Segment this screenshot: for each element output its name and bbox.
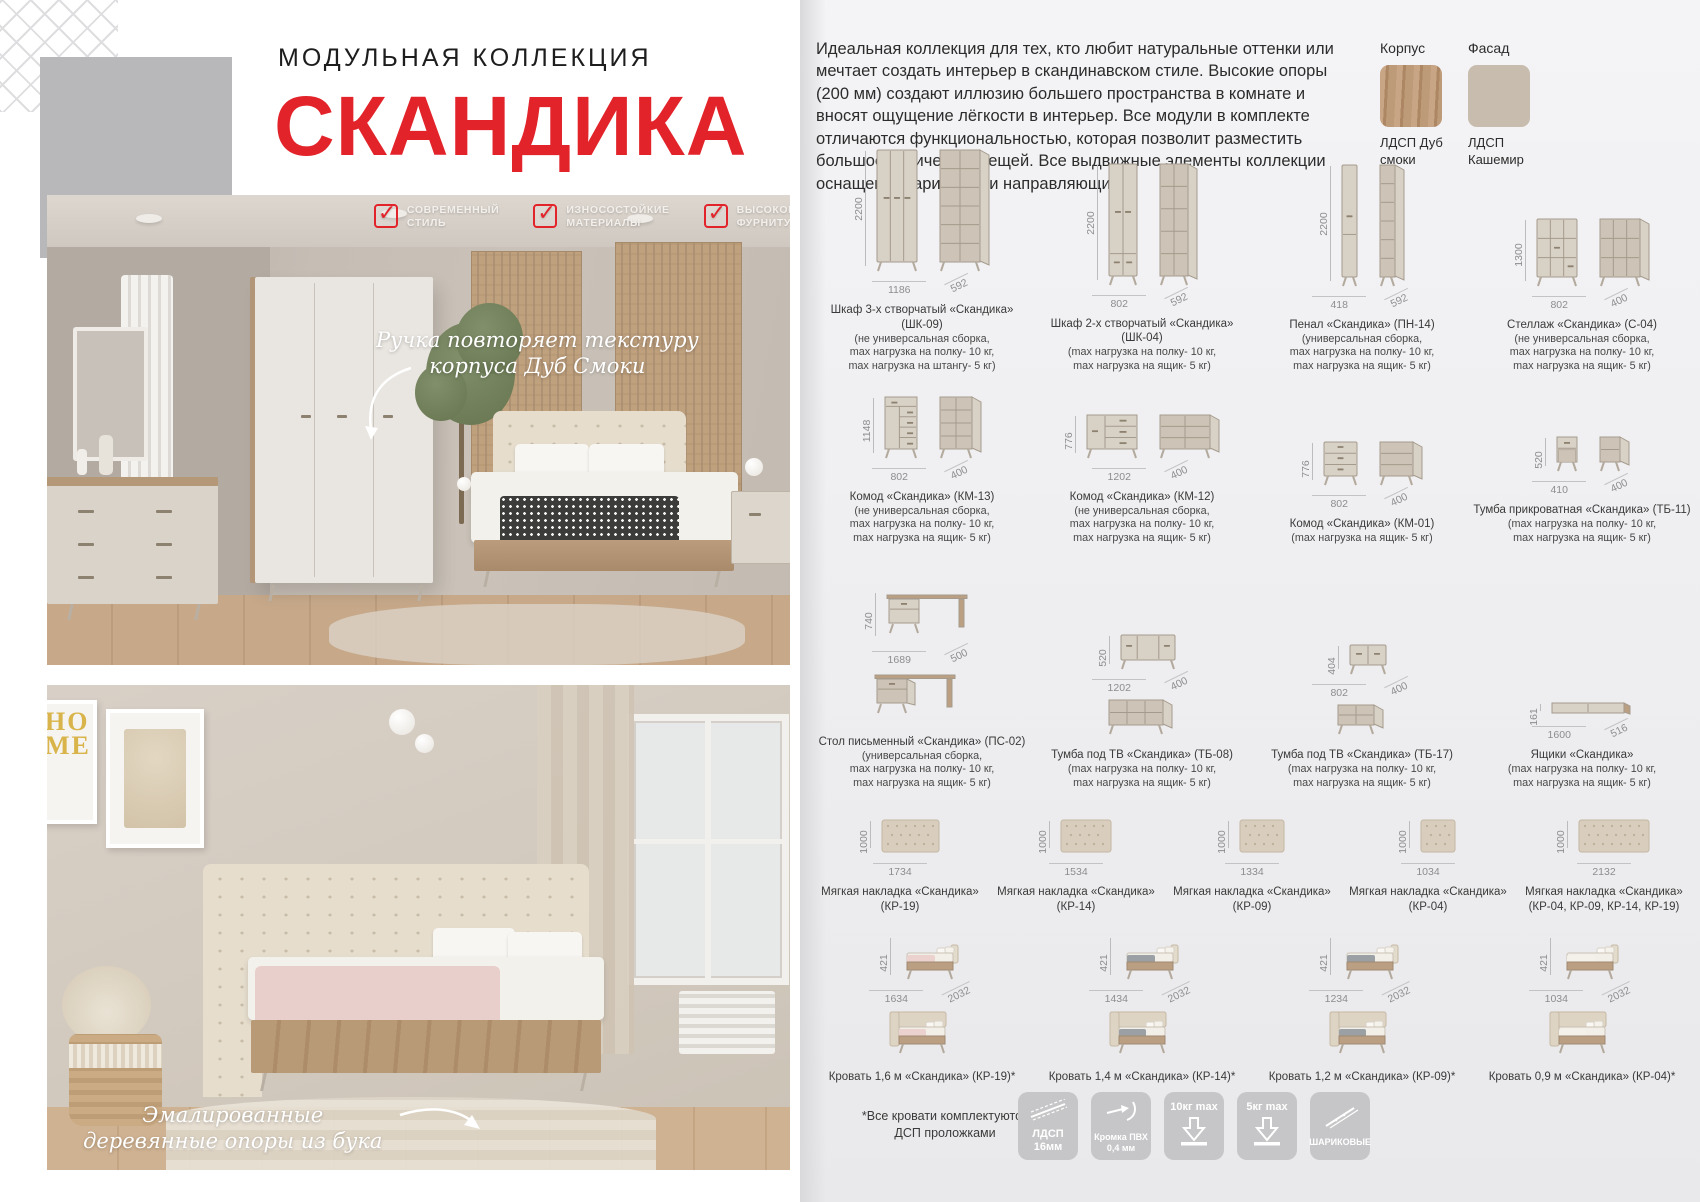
furniture-drawing-open bbox=[1379, 164, 1408, 293]
product-card: 5201202400Тумба под ТВ «Скандика» (ТБ-08… bbox=[1032, 549, 1252, 791]
poster-frame bbox=[106, 709, 203, 848]
height-dimension: 776 bbox=[1299, 441, 1314, 492]
product-row: 22001186592Шкаф 3-х створчатый «Скандика… bbox=[812, 194, 1692, 374]
furniture-drawing-open bbox=[1599, 218, 1653, 293]
furniture-drawing-open bbox=[1379, 441, 1426, 492]
product-row: 421 16342032 Кровать 1,6 м «Скандика» (К… bbox=[812, 917, 1692, 1085]
product-card: 1611600516Ящики «Скандика»(max нагрузка … bbox=[1472, 549, 1692, 791]
slides-tile: ШАРИКОВЫЕ bbox=[1310, 1092, 1370, 1160]
poster-text: HO ME bbox=[47, 704, 93, 765]
furniture-drawing bbox=[1086, 414, 1150, 465]
furniture-drawing bbox=[1239, 819, 1289, 860]
bed-base bbox=[474, 540, 734, 571]
height-dimension: 1000 bbox=[1554, 819, 1569, 860]
product-name: Кровать 0,9 м «Скандика» (КР-04)* bbox=[1489, 1070, 1676, 1085]
dresser bbox=[47, 477, 218, 604]
edge-tile: Кромка ПВХ 0,4 мм bbox=[1091, 1092, 1151, 1160]
furniture-drawing bbox=[1341, 936, 1407, 987]
pendant-lamp bbox=[415, 734, 434, 753]
furniture-drawing bbox=[884, 396, 930, 465]
base-dimensions: 802400 bbox=[1532, 296, 1632, 311]
material-korpus: Корпус ЛДСП Дуб смоки bbox=[1380, 40, 1446, 169]
product-card: 10002132Мягкая накладка «Скандика» (КР-0… bbox=[1516, 793, 1692, 915]
furniture-drawing-open bbox=[1599, 436, 1633, 478]
product-note: (не универсальная сборка,max нагрузка на… bbox=[848, 333, 995, 374]
poster-frame: HO ME bbox=[47, 700, 97, 824]
product-card: 10001534Мягкая накладка «Скандика» (КР-1… bbox=[988, 793, 1164, 915]
height-dimension: 520 bbox=[1532, 436, 1547, 478]
product-name: Пенал «Скандика» (ПН-14) bbox=[1289, 318, 1434, 333]
height-dimension: 1000 bbox=[1396, 819, 1411, 860]
curved-arrow-icon bbox=[396, 1105, 486, 1141]
edge-icon bbox=[1103, 1099, 1139, 1130]
height-dimension: 421 bbox=[1317, 936, 1332, 987]
product-card: 2200418592Пенал «Скандика» (ПН-14)(униве… bbox=[1252, 194, 1472, 374]
product-name: Кровать 1,2 м «Скандика» (КР-09)* bbox=[1269, 1070, 1456, 1085]
furniture-drawing bbox=[1578, 819, 1654, 860]
height-dimension: 1000 bbox=[1215, 819, 1230, 860]
vase bbox=[99, 435, 113, 475]
furniture-drawing-open bbox=[886, 1010, 958, 1063]
base-dimensions: 1534 bbox=[1049, 863, 1103, 878]
handle-annotation: Ручка повторяет текстуру корпуса Дуб Смо… bbox=[374, 327, 701, 380]
pendant-lamp bbox=[389, 709, 415, 735]
ldsp-tile: ЛДСП 16мм bbox=[1018, 1092, 1078, 1160]
product-card: 2200802592Шкаф 2-х створчатый «Скандика»… bbox=[1032, 194, 1252, 374]
lamp bbox=[745, 458, 763, 476]
badge-label: ВЫСОКОКАЧЕСТВЕ ФУРНИТУРА bbox=[737, 204, 790, 230]
base-dimensions: 1034 bbox=[1401, 863, 1455, 878]
feature-icon-tiles: ЛДСП 16ммКромка ПВХ 0,4 мм10кг max5кг ma… bbox=[1018, 1092, 1370, 1160]
check-icon bbox=[704, 204, 728, 228]
materials-legend: Корпус ЛДСП Дуб смоки Фасад ЛДСП Кашемир bbox=[1380, 40, 1534, 169]
bed-base bbox=[251, 1020, 600, 1073]
product-note: (универсальная сборка,max нагрузка на по… bbox=[850, 750, 995, 791]
furniture-drawing-open bbox=[1159, 414, 1223, 465]
catalog-panel: Идеальная коллекция для тех, кто любит н… bbox=[800, 0, 1700, 1202]
product-row: 7401689500Стол письменный «Скандика» (ПС… bbox=[812, 549, 1692, 791]
furniture-drawing-open bbox=[939, 149, 993, 278]
base-dimensions: 410400 bbox=[1532, 481, 1632, 496]
product-name: Шкаф 2-х створчатый «Скандика» (ШК-04) bbox=[1032, 317, 1252, 347]
product-name: Комод «Скандика» (КМ-01) bbox=[1290, 517, 1435, 532]
height-dimension: 740 bbox=[862, 591, 877, 648]
catalog-page: МОДУЛЬНАЯ КОЛЛЕКЦИЯ СКАНДИКА bbox=[0, 0, 1700, 1202]
furniture-drawing-open bbox=[1108, 699, 1176, 741]
fasad-label: Фасад bbox=[1468, 40, 1534, 56]
check-icon bbox=[374, 204, 398, 228]
furniture-drawing bbox=[1323, 441, 1370, 492]
base-dimensions: 2132 bbox=[1577, 863, 1631, 878]
base-dimensions: 802400 bbox=[1312, 684, 1412, 699]
furniture-drawing bbox=[1060, 819, 1116, 860]
badge-materials: ИЗНОСОСТОЙКИЕ МАТЕРИАЛЫ bbox=[533, 204, 669, 230]
page-title: СКАНДИКА bbox=[274, 78, 747, 175]
product-note: (max нагрузка на полку- 10 кг,max нагруз… bbox=[1508, 763, 1656, 791]
curved-arrow-icon bbox=[359, 364, 419, 444]
furniture-drawing bbox=[1536, 218, 1590, 293]
slides-icon bbox=[1320, 1104, 1360, 1135]
legs-annotation: Эмалированные деревянные опоры из бука bbox=[77, 1102, 389, 1155]
bedroom-photo-top: СОВРЕМЕННЫЙ СТИЛЬ ИЗНОСОСТОЙКИЕ МАТЕРИАЛ… bbox=[47, 195, 790, 665]
base-dimensions: 802592 bbox=[1092, 295, 1192, 310]
base-dimensions: 1202400 bbox=[1092, 468, 1192, 483]
furniture-drawing bbox=[1341, 164, 1370, 293]
load10-icon bbox=[1177, 1116, 1211, 1151]
product-name: Мягкая накладка «Скандика» (КР-04, КР-09… bbox=[1516, 885, 1692, 915]
furniture-drawing bbox=[886, 591, 982, 648]
basket-fringe bbox=[69, 1044, 162, 1068]
base-dimensions: 16342032 bbox=[869, 990, 974, 1005]
furniture-drawing bbox=[1121, 936, 1187, 987]
product-card: 421 14342032 Кровать 1,4 м «Скандика» (К… bbox=[1032, 917, 1252, 1085]
wood-swatch bbox=[1380, 65, 1442, 127]
product-note: (не универсальная сборка,max нагрузка на… bbox=[1510, 333, 1655, 374]
cashmere-swatch bbox=[1468, 65, 1530, 127]
base-dimensions: 418592 bbox=[1312, 296, 1412, 311]
product-card: 10001334Мягкая накладка «Скандика» (КР-0… bbox=[1164, 793, 1340, 915]
product-name: Кровать 1,6 м «Скандика» (КР-19)* bbox=[829, 1070, 1016, 1085]
height-dimension: 520 bbox=[1096, 634, 1111, 676]
product-name: Мягкая накладка «Скандика» (КР-14) bbox=[988, 885, 1164, 915]
furniture-drawing bbox=[876, 149, 930, 278]
lamp bbox=[457, 477, 471, 491]
product-name: Тумба под ТВ «Скандика» (ТБ-17) bbox=[1271, 748, 1453, 763]
furniture-drawing bbox=[1556, 436, 1590, 478]
height-dimension: 2200 bbox=[852, 149, 867, 278]
wall-shelf bbox=[679, 991, 776, 1054]
base-dimensions: 10342032 bbox=[1529, 990, 1634, 1005]
check-icon bbox=[533, 204, 557, 228]
furniture-drawing bbox=[881, 819, 944, 860]
furniture-drawing bbox=[1349, 644, 1399, 681]
product-name: Кровать 1,4 м «Скандика» (КР-14)* bbox=[1049, 1070, 1236, 1085]
height-dimension: 1000 bbox=[857, 819, 872, 860]
product-note: (max нагрузка на полку- 10 кг,max нагруз… bbox=[1068, 763, 1216, 791]
product-row: 10001734Мягкая накладка «Скандика» (КР-1… bbox=[812, 793, 1692, 915]
material-fasad: Фасад ЛДСП Кашемир bbox=[1468, 40, 1534, 169]
badge-modern-style: СОВРЕМЕННЫЙ СТИЛЬ bbox=[374, 204, 499, 230]
base-dimensions: 14342032 bbox=[1089, 990, 1194, 1005]
product-name: Мягкая накладка «Скандика» (КР-09) bbox=[1164, 885, 1340, 915]
furniture-drawing-open bbox=[1546, 1010, 1618, 1063]
product-note: (max нагрузка на полку- 10 кг,max нагруз… bbox=[1288, 763, 1436, 791]
badge-label: ИЗНОСОСТОЙКИЕ МАТЕРИАЛЫ bbox=[566, 204, 669, 230]
furniture-drawing bbox=[1120, 634, 1188, 676]
product-name: Шкаф 3-х створчатый «Скандика» (ШК-09) bbox=[812, 303, 1032, 333]
height-dimension: 1000 bbox=[1036, 819, 1051, 860]
height-dimension: 2200 bbox=[1084, 163, 1099, 292]
product-card: 776802400Комод «Скандика» (КМ-01)(max на… bbox=[1252, 376, 1472, 546]
furniture-drawing-open bbox=[1326, 1010, 1398, 1063]
base-dimensions: 12342032 bbox=[1309, 990, 1414, 1005]
base-dimensions: 1734 bbox=[873, 863, 927, 878]
base-dimensions: 1600516 bbox=[1532, 726, 1632, 741]
product-name: Стол письменный «Скандика» (ПС-02) bbox=[819, 735, 1026, 750]
height-dimension: 421 bbox=[877, 936, 892, 987]
product-name: Комод «Скандика» (КМ-13) bbox=[850, 490, 995, 505]
tile-label: Кромка ПВХ 0,4 мм bbox=[1093, 1132, 1149, 1153]
load10-tile: 10кг max bbox=[1164, 1092, 1224, 1160]
product-name: Тумба под ТВ «Скандика» (ТБ-08) bbox=[1051, 748, 1233, 763]
tile-label: 5кг max bbox=[1246, 1101, 1287, 1114]
product-card: 10001034Мягкая накладка «Скандика» (КР-0… bbox=[1340, 793, 1516, 915]
furniture-drawing-open bbox=[1106, 1010, 1178, 1063]
fasad-name: ЛДСП Кашемир bbox=[1468, 135, 1534, 169]
furniture-drawing-open bbox=[939, 396, 985, 465]
height-dimension: 1148 bbox=[860, 396, 875, 465]
product-card: 404802400Тумба под ТВ «Скандика» (ТБ-17)… bbox=[1252, 549, 1472, 791]
feature-badges: СОВРЕМЕННЫЙ СТИЛЬ ИЗНОСОСТОЙКИЕ МАТЕРИАЛ… bbox=[374, 204, 790, 230]
beds-footnote: *Все кровати комплектуются ДСП проложкам… bbox=[860, 1108, 1030, 1142]
height-dimension: 161 bbox=[1527, 702, 1542, 723]
product-card: 1148802400Комод «Скандика» (КМ-13)(не ун… bbox=[812, 376, 1032, 546]
rug bbox=[329, 604, 745, 665]
base-dimensions: 802400 bbox=[872, 468, 972, 483]
product-card: 421 12342032 Кровать 1,2 м «Скандика» (К… bbox=[1252, 917, 1472, 1085]
product-name: Мягкая накладка «Скандика» (КР-19) bbox=[812, 885, 988, 915]
pampas bbox=[62, 966, 151, 1044]
base-dimensions: 1202400 bbox=[1092, 679, 1192, 694]
product-card: 520410400Тумба прикроватная «Скандика» (… bbox=[1472, 376, 1692, 546]
load5-icon bbox=[1250, 1116, 1284, 1151]
korpus-label: Корпус bbox=[1380, 40, 1446, 56]
product-note: (max нагрузка на полку- 10 кг,max нагруз… bbox=[1068, 346, 1216, 374]
spotlight-icon bbox=[136, 214, 162, 223]
nightstand bbox=[731, 491, 790, 564]
load5-tile: 5кг max bbox=[1237, 1092, 1297, 1160]
product-card: 22001186592Шкаф 3-х створчатый «Скандика… bbox=[812, 194, 1032, 374]
product-name: Мягкая накладка «Скандика» (КР-04) bbox=[1340, 885, 1516, 915]
plant bbox=[459, 421, 464, 524]
base-dimensions: 1689500 bbox=[872, 651, 972, 666]
base-dimensions: 1334 bbox=[1225, 863, 1279, 878]
product-note: (не универсальная сборка,max нагрузка на… bbox=[850, 505, 995, 546]
product-note: (универсальная сборка,max нагрузка на по… bbox=[1290, 333, 1435, 374]
badge-furniture: ВЫСОКОКАЧЕСТВЕ ФУРНИТУРА bbox=[704, 204, 790, 230]
collection-label: МОДУЛЬНАЯ КОЛЛЕКЦИЯ bbox=[278, 44, 652, 73]
product-name: Ящики «Скандика» bbox=[1531, 748, 1634, 763]
furniture-drawing bbox=[1420, 819, 1460, 860]
ldsp-icon bbox=[1028, 1099, 1068, 1126]
furniture-drawing bbox=[901, 936, 967, 987]
furniture-drawing-open bbox=[1159, 163, 1201, 292]
product-card: 421 16342032 Кровать 1,6 м «Скандика» (К… bbox=[812, 917, 1032, 1085]
product-card: 7761202400Комод «Скандика» (КМ-12)(не ун… bbox=[1032, 376, 1252, 546]
furniture-drawing-open bbox=[874, 671, 970, 728]
height-dimension: 2200 bbox=[1317, 164, 1332, 293]
height-dimension: 1300 bbox=[1512, 218, 1527, 293]
base-dimensions: 802400 bbox=[1312, 495, 1412, 510]
product-card: 421 10342032 Кровать 0,9 м «Скандика» (К… bbox=[1472, 917, 1692, 1085]
product-name: Стеллаж «Скандика» (С-04) bbox=[1507, 318, 1657, 333]
bedroom-photo-bottom: HO ME Эмалированные деревянные опоры из … bbox=[47, 685, 790, 1170]
furniture-drawing bbox=[1561, 936, 1627, 987]
product-card: 7401689500Стол письменный «Скандика» (ПС… bbox=[812, 549, 1032, 791]
window bbox=[627, 714, 790, 985]
product-card: 10001734Мягкая накладка «Скандика» (КР-1… bbox=[812, 793, 988, 915]
height-dimension: 776 bbox=[1062, 414, 1077, 465]
product-note: (не универсальная сборка,max нагрузка на… bbox=[1070, 505, 1215, 546]
product-row: 1148802400Комод «Скандика» (КМ-13)(не ун… bbox=[812, 376, 1692, 546]
height-dimension: 421 bbox=[1097, 936, 1112, 987]
product-name: Тумба прикроватная «Скандика» (ТБ-11) bbox=[1473, 503, 1690, 518]
height-dimension: 404 bbox=[1325, 644, 1340, 681]
tile-label: ШАРИКОВЫЕ bbox=[1309, 1137, 1371, 1147]
tile-label: 10кг max bbox=[1170, 1101, 1217, 1114]
tile-label: ЛДСП 16мм bbox=[1020, 1128, 1076, 1153]
height-dimension: 421 bbox=[1537, 936, 1552, 987]
furniture-drawing bbox=[1108, 163, 1150, 292]
product-name: Комод «Скандика» (КМ-12) bbox=[1070, 490, 1215, 505]
badge-label: СОВРЕМЕННЫЙ СТИЛЬ bbox=[407, 204, 499, 230]
base-dimensions: 1186592 bbox=[872, 281, 972, 296]
vase bbox=[77, 449, 87, 475]
product-note: (max нагрузка на ящик- 5 кг) bbox=[1291, 532, 1432, 546]
furniture-drawing-open bbox=[1337, 704, 1387, 741]
product-card: 1300802400Стеллаж «Скандика» (С-04)(не у… bbox=[1472, 194, 1692, 374]
product-note: (max нагрузка на полку- 10 кг,max нагруз… bbox=[1508, 518, 1656, 546]
